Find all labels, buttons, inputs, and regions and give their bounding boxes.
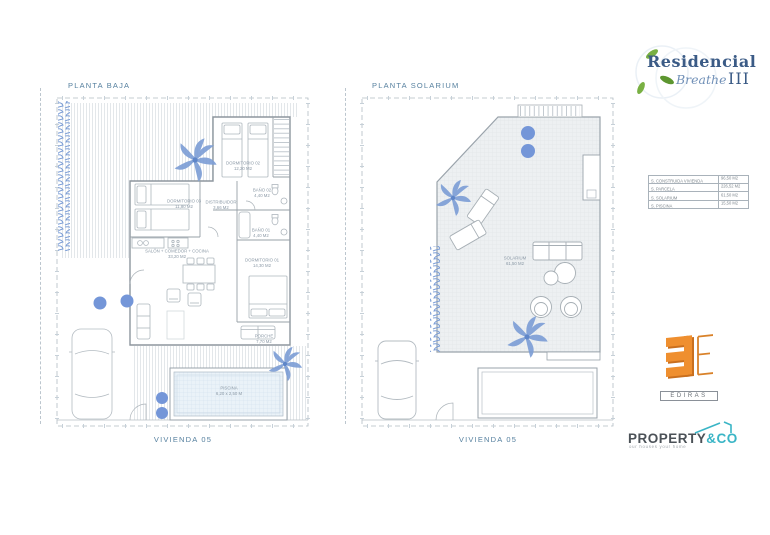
floor-plan-solarium-drawing <box>360 96 616 430</box>
property-co-logo: PROPERTY&CO our houses your home <box>628 421 768 457</box>
kitchen-counter <box>132 238 188 248</box>
area-summary-table: VIVIENDA 05 S. CONSTRUIDA VIVIENDA 96,50… <box>648 167 749 209</box>
residencial-breathe-logo: Residencial Breathe III <box>628 38 770 110</box>
double-bed-icon <box>249 276 287 318</box>
plan-title-solarium: PLANTA SOLARIUM <box>372 81 459 90</box>
bed-icon <box>135 209 189 230</box>
property-tagline: our houses your home <box>629 445 686 449</box>
gate-door-arc <box>436 403 453 420</box>
property-suffix: &CO <box>706 431 738 446</box>
toilet-icon <box>272 185 278 195</box>
brand-numeral: III <box>728 69 750 88</box>
ediras-logo-icon <box>656 334 726 386</box>
bathtub-icon <box>239 212 250 238</box>
table-row: S. PISCINA 15,50 M2 <box>648 201 749 210</box>
plan-footer-solarium: VIVIENDA 05 <box>459 435 517 444</box>
armchair-icon <box>188 293 201 306</box>
plan-footer-baja: VIVIENDA 05 <box>154 435 212 444</box>
stairs-icon <box>518 105 582 117</box>
solarium-step <box>547 352 600 360</box>
round-chair-icon <box>531 297 552 318</box>
dining-table-icon <box>183 258 215 290</box>
vegetation-border <box>58 101 70 251</box>
room-label-dormitorio-01: DORMITORIO 0114,30 M2 <box>245 258 279 269</box>
car-icon <box>375 341 419 419</box>
plan-planta-baja: PLANTA BAJA <box>55 78 311 450</box>
plan-title-baja: PLANTA BAJA <box>68 81 130 90</box>
sofa-icon <box>533 242 582 260</box>
ediras-label-box: EDIRAS <box>660 391 718 401</box>
plan-planta-solarium: PLANTA SOLARIUM <box>360 78 616 450</box>
pool-outline <box>478 368 597 418</box>
room-label-distribuidor: DISTRIBUIDOR3,66 M2 <box>206 200 237 211</box>
property-name: PROPERTY <box>628 431 706 446</box>
room-label-dormitorio-03: DORMITORIO 0311,80 M2 <box>167 199 201 210</box>
room-label-dormitorio-02: DORMITORIO 0212,20 M2 <box>226 161 260 172</box>
car-icon <box>69 329 115 419</box>
toilet-icon <box>272 215 278 225</box>
vegetation-border <box>430 246 440 352</box>
room-label-bano-02: BAÑO 024,40 M2 <box>253 188 271 199</box>
coffee-table-icon <box>544 271 558 285</box>
dimension-line-left <box>40 88 41 424</box>
room-label-bano-01: BAÑO 014,40 M2 <box>252 228 270 239</box>
sink-icon <box>281 198 287 204</box>
sink-icon <box>281 229 287 235</box>
brand-subname: Breathe <box>676 72 726 87</box>
room-label-solarium: SOLARIUM61,50 M2 <box>504 256 527 267</box>
room-label-porche: PORCHE7,70 M2 <box>255 334 273 345</box>
floor-plan-sheet: PLANTA BAJA <box>0 0 770 535</box>
ediras-logo: EDIRAS <box>656 334 728 401</box>
sofa-icon <box>137 304 150 339</box>
leaf-icon <box>636 81 647 95</box>
dimension-line-middle <box>345 88 346 424</box>
leaf-icon <box>659 74 675 86</box>
room-label-piscina: PISCINA6,20 x 2,50 M <box>216 386 242 397</box>
round-chair-icon <box>561 297 582 318</box>
room-label-salon: SALÓN + COMEDOR + COCINA33,20 M2 <box>145 249 209 260</box>
stair-bulkhead <box>583 155 600 200</box>
armchair-icon <box>167 289 180 302</box>
table-row: S. CONSTRUIDA VIVIENDA 96,50 M2 <box>648 175 749 184</box>
